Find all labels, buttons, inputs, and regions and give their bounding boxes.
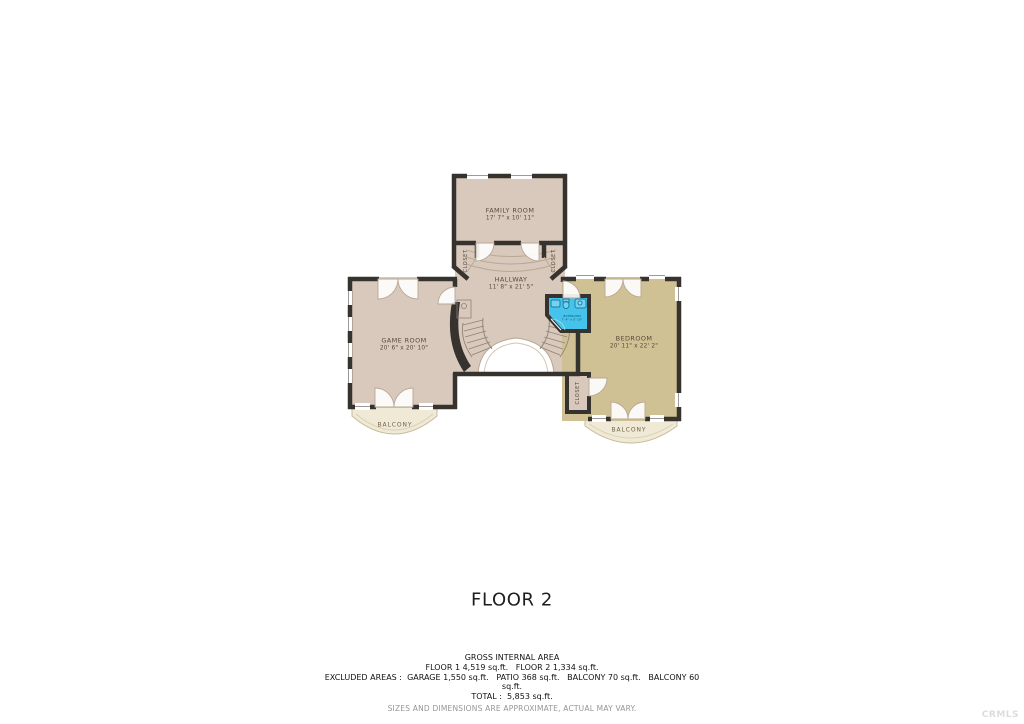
room-label-bedroom: BEDROOM 20' 11" x 22' 2": [610, 335, 658, 350]
room-dims: 20' 11" x 22' 2": [610, 344, 658, 350]
room-label-hallway: HALLWAY 11' 8" x 21' 5": [489, 276, 533, 291]
room-label-family-room: FAMILY ROOM 17' 7" x 10' 11": [486, 207, 535, 222]
room-name: FAMILY ROOM: [486, 207, 535, 215]
room-dims: 7' 4" x 5' 10": [562, 318, 583, 321]
room-dims: 11' 8" x 21' 5": [489, 285, 533, 291]
balcony-label-right: BALCONY: [612, 427, 647, 434]
floor-title: FLOOR 2: [471, 590, 553, 611]
disclaimer-text: SIZES AND DIMENSIONS ARE APPROXIMATE, AC…: [0, 704, 1024, 713]
floorplan-drawing: [0, 0, 1024, 724]
closet-label-right: CLOSET: [551, 249, 557, 272]
total-area-line: TOTAL : 5,853 sq.ft.: [0, 692, 1024, 702]
excluded-areas-line2: sq.ft.: [0, 682, 1024, 692]
floor-areas-line: FLOOR 1 4,519 sq.ft. FLOOR 2 1,334 sq.ft…: [0, 663, 1024, 673]
room-label-game-room: GAME ROOM 20' 6" x 20' 10": [380, 337, 428, 352]
room-name: BEDROOM: [610, 335, 658, 343]
room-name: GAME ROOM: [380, 337, 428, 345]
room-name: HALLWAY: [489, 276, 533, 284]
area-summary: GROSS INTERNAL AREA FLOOR 1 4,519 sq.ft.…: [0, 653, 1024, 702]
closet-label-bedroom: CLOSET: [575, 381, 581, 404]
excluded-areas-line: EXCLUDED AREAS : GARAGE 1,550 sq.ft. PAT…: [0, 673, 1024, 683]
gross-internal-area-title: GROSS INTERNAL AREA: [0, 653, 1024, 663]
crmls-watermark: CRMLS: [982, 710, 1019, 720]
room-dims: 20' 6" x 20' 10": [380, 346, 428, 352]
closet-label-left: CLOSET: [463, 249, 469, 272]
balcony-label-left: BALCONY: [378, 422, 413, 429]
room-label-bathroom: BATHROOM 7' 4" x 5' 10": [562, 315, 583, 322]
room-dims: 17' 7" x 10' 11": [486, 216, 535, 222]
